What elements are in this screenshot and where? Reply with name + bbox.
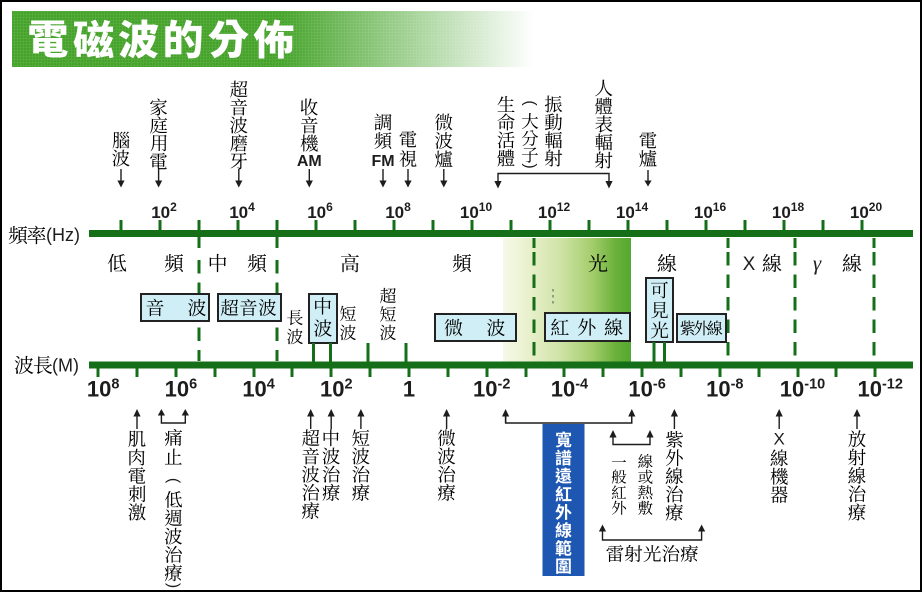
svg-text:X: X xyxy=(774,430,785,449)
svg-text:1018: 1018 xyxy=(772,200,805,222)
svg-text:10-12: 10-12 xyxy=(857,377,902,402)
svg-text:106: 106 xyxy=(165,377,198,402)
svg-text:1020: 1020 xyxy=(850,200,883,222)
svg-text:1014: 1014 xyxy=(616,200,649,222)
svg-text:(: ( xyxy=(165,478,182,484)
svg-text:AM: AM xyxy=(297,153,322,170)
svg-text:(Hz): (Hz) xyxy=(46,225,80,245)
svg-text:108: 108 xyxy=(385,200,411,222)
svg-text:1010: 1010 xyxy=(460,200,493,222)
svg-text:102: 102 xyxy=(320,377,353,402)
svg-text:10-10: 10-10 xyxy=(780,377,825,402)
svg-text:10-4: 10-4 xyxy=(551,377,588,402)
svg-text:1: 1 xyxy=(403,377,415,402)
svg-text:1016: 1016 xyxy=(694,200,727,222)
svg-text:106: 106 xyxy=(307,200,333,222)
svg-text:104: 104 xyxy=(242,377,275,402)
svg-text:(: ( xyxy=(522,100,539,106)
svg-text:): ) xyxy=(165,583,182,588)
svg-text:102: 102 xyxy=(151,200,177,222)
svg-text:FM: FM xyxy=(371,153,394,170)
svg-text:X: X xyxy=(743,254,756,275)
svg-text:1012: 1012 xyxy=(538,200,571,222)
svg-text:108: 108 xyxy=(87,377,120,402)
svg-text:104: 104 xyxy=(229,200,255,222)
svg-text:(M): (M) xyxy=(52,356,79,376)
svg-text:10-8: 10-8 xyxy=(706,377,743,402)
svg-text:): ) xyxy=(522,163,539,168)
svg-text:10-6: 10-6 xyxy=(628,377,665,402)
svg-text:γ: γ xyxy=(813,251,822,275)
svg-text:10-2: 10-2 xyxy=(473,377,510,402)
